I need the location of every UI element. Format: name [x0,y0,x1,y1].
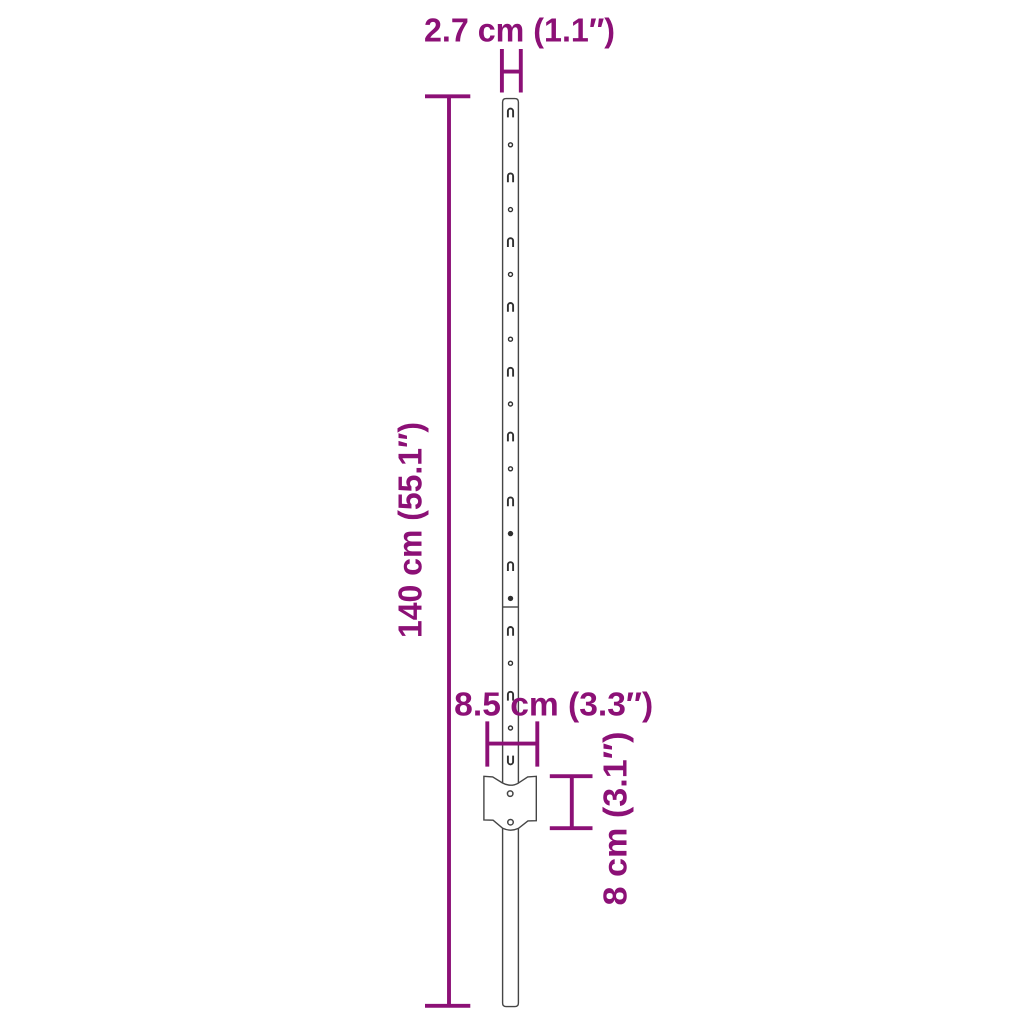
svg-text:8 cm (3.1″): 8 cm (3.1″) [597,732,634,906]
svg-text:8.5 cm (3.3″): 8.5 cm (3.3″) [454,686,653,723]
svg-text:140 cm (55.1″): 140 cm (55.1″) [392,422,429,638]
svg-text:2.7 cm (1.1″): 2.7 cm (1.1″) [424,11,615,48]
